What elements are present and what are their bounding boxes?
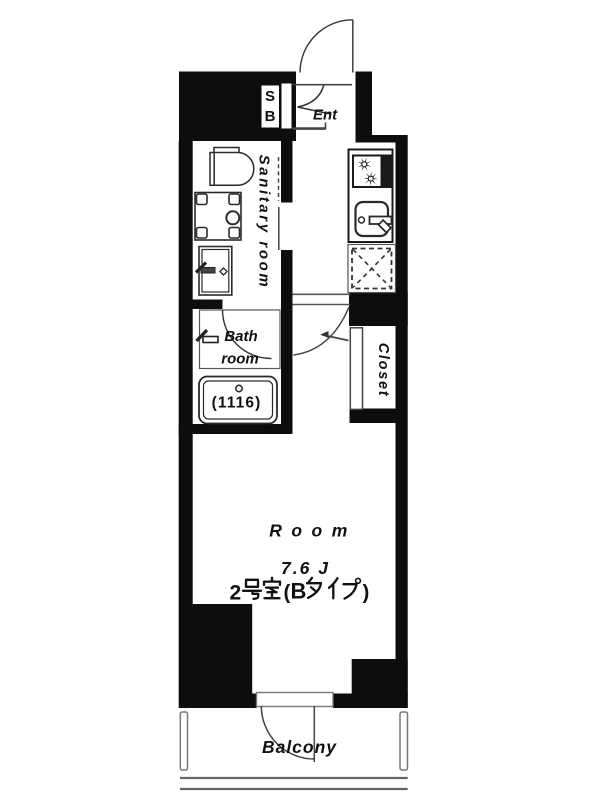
svg-text:Closet: Closet bbox=[375, 343, 391, 398]
svg-text:room: room bbox=[221, 351, 259, 368]
svg-text:S: S bbox=[265, 88, 275, 105]
svg-text:Balcony: Balcony bbox=[262, 737, 337, 757]
svg-text:7.6 J: 7.6 J bbox=[281, 558, 330, 578]
svg-text:2: 2 bbox=[230, 582, 242, 605]
svg-text:(: ( bbox=[284, 581, 291, 604]
svg-text:): ) bbox=[363, 581, 370, 604]
svg-text:B: B bbox=[265, 108, 276, 125]
svg-text:Ent: Ent bbox=[313, 107, 338, 124]
svg-text:Bath: Bath bbox=[224, 328, 257, 345]
svg-text:Room: Room bbox=[269, 521, 357, 541]
svg-text:(1116): (1116) bbox=[212, 395, 262, 412]
svg-text:B: B bbox=[291, 579, 307, 604]
svg-text:Sanitary room: Sanitary room bbox=[256, 155, 273, 290]
